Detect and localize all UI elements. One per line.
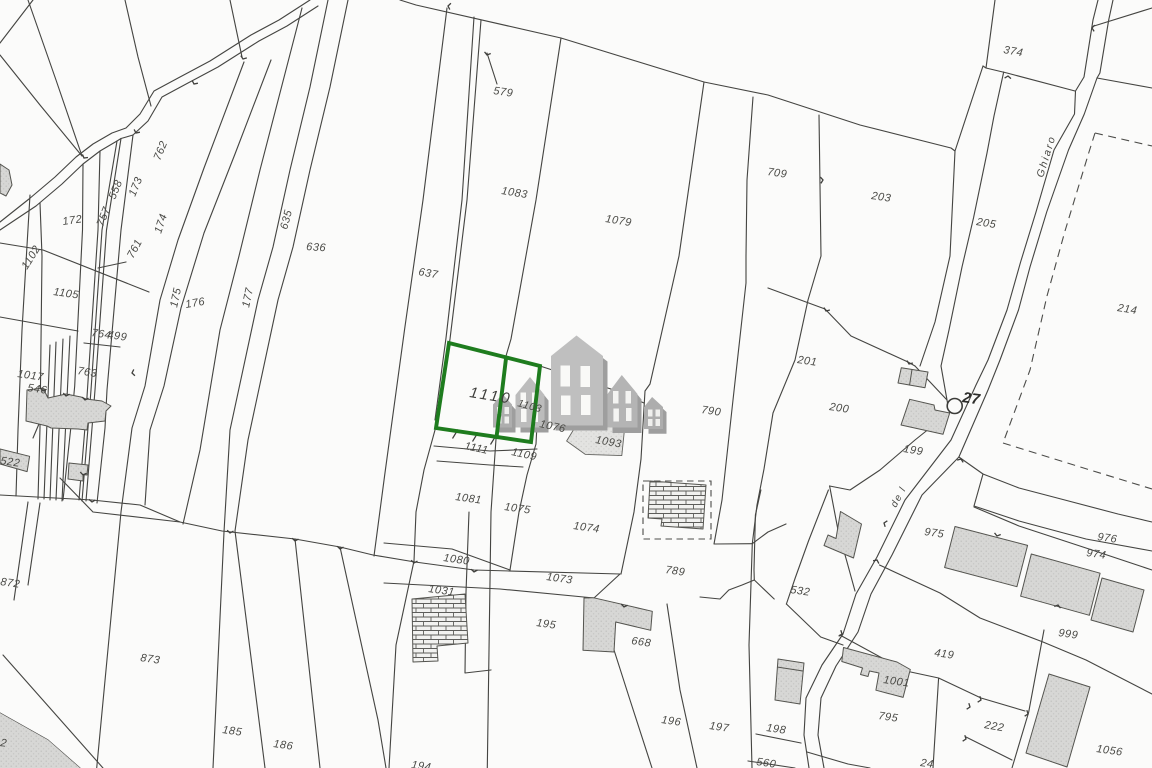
svg-text:27: 27 xyxy=(960,389,981,408)
svg-text:636: 636 xyxy=(306,241,327,254)
svg-text:194: 194 xyxy=(411,759,432,768)
svg-text:24: 24 xyxy=(919,757,935,768)
svg-text:560: 560 xyxy=(756,756,778,768)
